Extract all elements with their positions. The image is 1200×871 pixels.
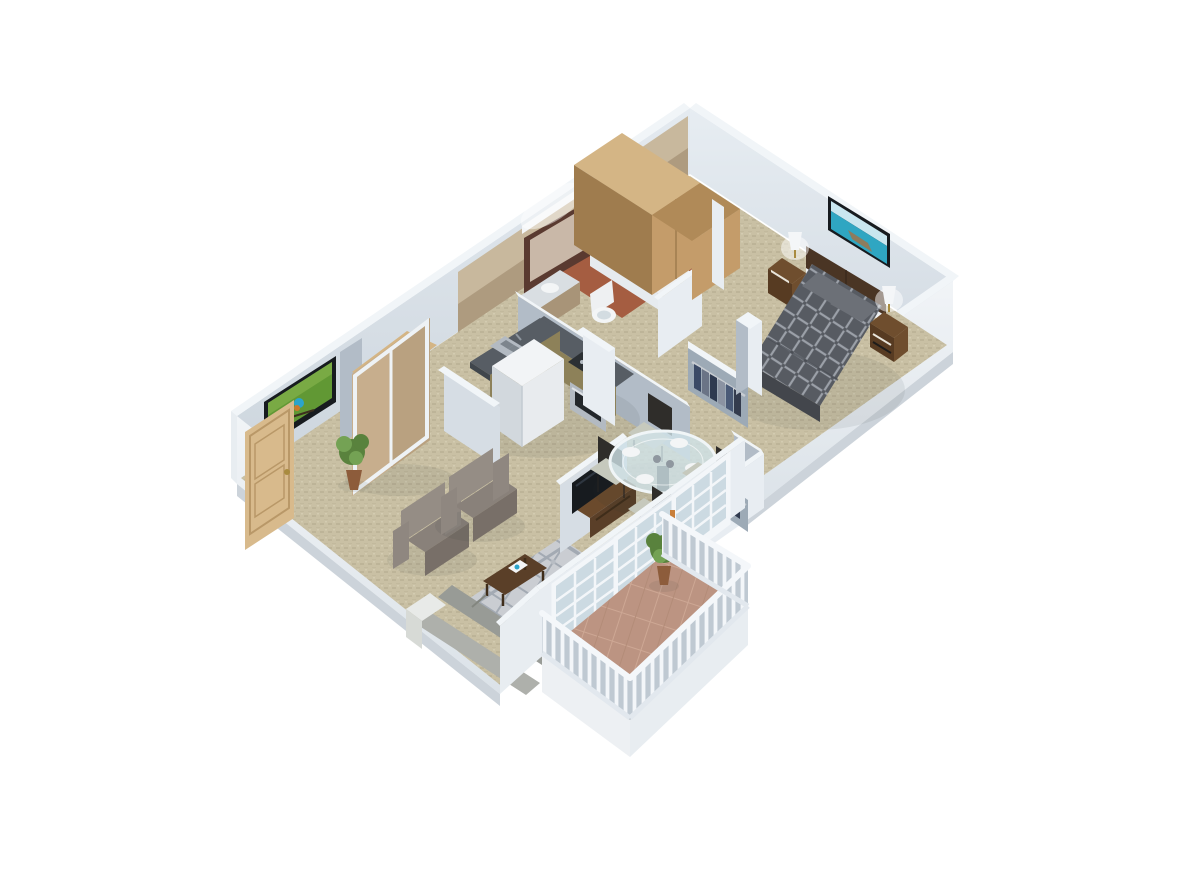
- closet-wall-stub: [712, 199, 724, 290]
- door-knob: [284, 469, 290, 475]
- floor-plan-rendering-canvas: [0, 0, 1200, 871]
- isometric-floor-plan: [0, 0, 1200, 871]
